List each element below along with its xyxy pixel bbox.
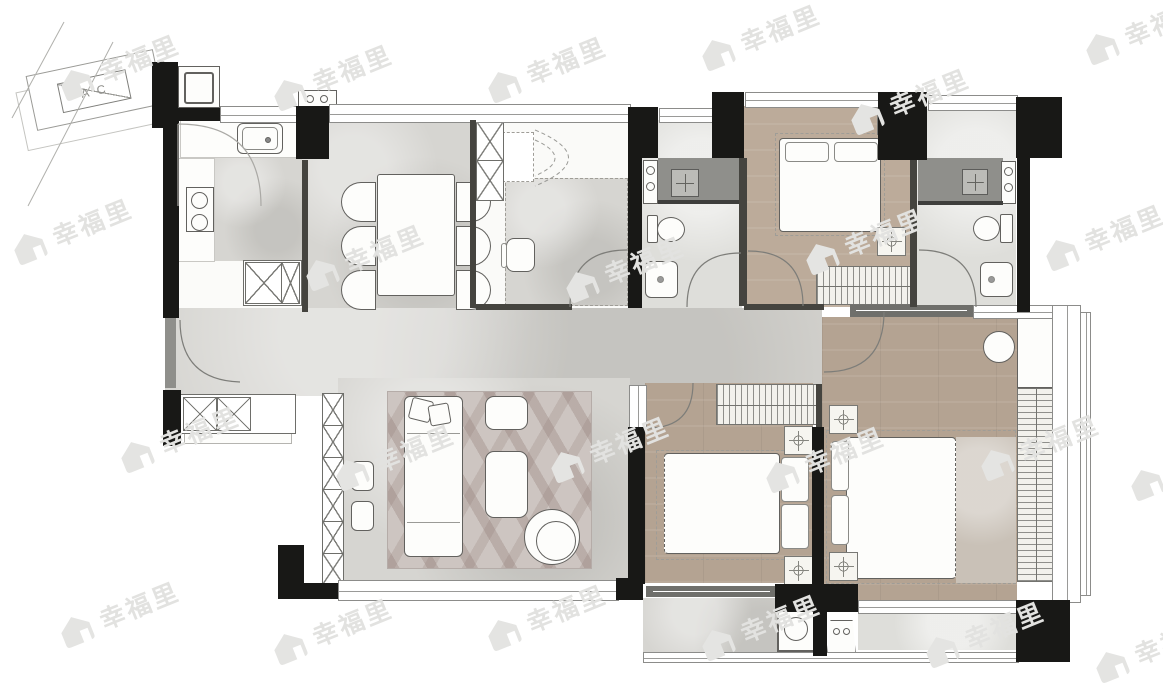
- bedroom3-bed: [664, 453, 780, 554]
- watermark-house-icon: [7, 226, 52, 269]
- kitchen-window: [220, 106, 302, 123]
- bathroom2-shower-area: [918, 158, 1003, 203]
- wall-l-corner-b: [278, 583, 338, 599]
- wall-bedroom2-left: [739, 158, 747, 306]
- wall-column-entry: [163, 390, 181, 446]
- wall-study-bottom: [476, 304, 572, 310]
- stove-burner-1: [191, 192, 208, 209]
- entry-door-leaf: [165, 318, 176, 388]
- gas-meter-dial-1: [306, 95, 314, 103]
- wall-fridge-nook: [178, 108, 220, 121]
- bedroom2-window: [745, 92, 882, 108]
- master-wardrobe-top: [1017, 310, 1053, 388]
- coffee-table: [485, 451, 528, 518]
- bathroom1-washer-dial: [646, 166, 655, 175]
- wall-column-bedroom2-l: [712, 92, 744, 158]
- watermark: 幸福里: [694, 0, 826, 77]
- study-wardrobe-x2: [476, 160, 504, 201]
- bathroom2-shower-drain: [962, 169, 988, 195]
- shoe-cabinet-x2: [217, 397, 251, 431]
- master-bed: [846, 437, 956, 579]
- watermark-house-icon: [1079, 26, 1124, 69]
- watermark-house-icon: [481, 64, 526, 107]
- wall-column-bath1: [628, 107, 658, 158]
- wall-left-kitchen: [163, 112, 179, 318]
- bathroom1-glass-partition: [658, 200, 742, 204]
- watermark: 幸福里: [266, 589, 398, 670]
- tv-strip-x1: [322, 393, 344, 427]
- wall-column-bedroom2-r: [878, 92, 927, 160]
- rear-balcony-floor: [858, 612, 1017, 650]
- sofa-cushion: [427, 402, 451, 426]
- bedroom3-balcony-slider: [646, 586, 776, 597]
- tv-strip-x4: [322, 489, 344, 523]
- toilet-tank-2: [1000, 214, 1013, 243]
- wall-balcony-block: [775, 584, 858, 612]
- bedroom3-door-jamb: [629, 385, 647, 429]
- sofa-seam: [407, 433, 460, 434]
- desk-chair-back: [501, 243, 507, 268]
- dining-chair: [341, 226, 376, 266]
- bathroom2-window: [928, 95, 1018, 111]
- kitchen-floor-marble: [215, 157, 303, 261]
- wall-column-br: [1016, 600, 1070, 662]
- refrigerator-icon: [184, 72, 214, 104]
- watermark-text: 幸福里: [1119, 0, 1163, 54]
- bathroom1-faucet-icon: [657, 276, 664, 283]
- shoe-cabinet-x1: [183, 397, 217, 431]
- watermark-text: 幸福里: [521, 27, 612, 92]
- wall-study-left: [470, 120, 476, 308]
- living-room-balcony-window: [338, 580, 619, 601]
- toilet-bowl-2: [973, 216, 1000, 241]
- watermark-text: 幸福里: [94, 572, 185, 637]
- watermark-text: 幸福里: [735, 0, 826, 60]
- mop-sink: [827, 620, 856, 655]
- ac-unit-box: AC: [57, 69, 132, 113]
- shoe-bench: [184, 433, 292, 444]
- study-wardrobe-x1: [476, 121, 504, 162]
- dining-chair: [341, 270, 376, 310]
- bathroom1-washer-dial2: [646, 182, 655, 191]
- mop-sink-faucet: [833, 628, 840, 635]
- bedroom2-wardrobe: [816, 266, 915, 305]
- bed-pillow: [831, 441, 849, 491]
- tv-strip-x5: [322, 521, 344, 555]
- bed-pillow: [831, 495, 849, 545]
- wall-bedroom3-master: [812, 427, 824, 585]
- watermark-house-icon: [695, 32, 740, 75]
- master-wardrobe: [1017, 388, 1055, 582]
- watermark-text: 幸福里: [1129, 607, 1163, 672]
- dining-study-window: [329, 104, 631, 123]
- side-table: [351, 501, 374, 531]
- watermark: 幸福里: [1038, 195, 1163, 276]
- bed-pillow: [834, 142, 878, 162]
- watermark-house-icon: [1039, 232, 1084, 275]
- wall-column-kitchen-tr: [296, 106, 329, 159]
- bathroom1-shower-drain: [671, 169, 699, 197]
- tv-strip-x2: [322, 425, 344, 459]
- master-bay-window: [1052, 305, 1081, 603]
- bed-pillow: [781, 504, 809, 549]
- dining-table: [377, 174, 455, 296]
- mop-sink-drain: [843, 628, 850, 635]
- bathroom2-glass-partition: [918, 201, 1003, 205]
- watermark: 幸福里: [1078, 0, 1163, 71]
- toilet-bowl-1: [657, 217, 685, 242]
- watermark-house-icon: [114, 434, 159, 477]
- wall-l-corner-a: [278, 545, 304, 585]
- watermark-house-icon: [54, 609, 99, 652]
- master-bed-bench: [956, 437, 1016, 583]
- ac-vent-symbol: [829, 552, 858, 581]
- fold-down-bed: [502, 132, 534, 182]
- wall-column-tr: [1016, 97, 1062, 158]
- ac-vent-symbol: [829, 405, 858, 434]
- lounge-chair-seat: [536, 521, 576, 561]
- ac-label: AC: [80, 80, 115, 100]
- bedroom3-wardrobe: [716, 384, 818, 425]
- stove-burner-2: [191, 214, 208, 231]
- tv-strip-x3: [322, 457, 344, 491]
- sofa-seam: [407, 522, 460, 523]
- ac-vent-symbol: [784, 426, 813, 455]
- master-round-table: [983, 331, 1015, 363]
- bathroom2-heater-dial: [1004, 167, 1013, 176]
- bathroom2-heater-dial2: [1004, 183, 1013, 192]
- watermark: 幸福里: [480, 27, 612, 108]
- wall-bath2-left: [910, 160, 917, 307]
- bathroom2-faucet-icon: [988, 276, 995, 283]
- wall-kitchen-half: [302, 160, 308, 312]
- kitchen-faucet-icon: [265, 137, 271, 143]
- watermark: 幸福里: [6, 189, 138, 270]
- wall-bath1-left: [628, 158, 642, 308]
- kitchen-cabinet-x2: [281, 262, 300, 304]
- washing-machine-drum: [784, 617, 808, 641]
- wall-right-bath2: [1017, 158, 1030, 312]
- watermark-house-icon: [1124, 462, 1163, 505]
- wall-master-wardrobe: [816, 384, 822, 427]
- dining-chair: [341, 182, 376, 222]
- ottoman: [485, 396, 528, 430]
- watermark-house-icon: [481, 612, 526, 655]
- bathroom1-window: [659, 108, 715, 123]
- watermark: 幸福里: [53, 572, 185, 653]
- kitchen-cabinet-x1: [245, 262, 283, 304]
- bed-pillow: [781, 457, 809, 502]
- ac-vent-symbol: [877, 227, 906, 256]
- ac-vent-symbol: [784, 556, 813, 585]
- kitchen-sink-basin: [242, 127, 278, 150]
- wall-bedroom3-left: [628, 427, 645, 584]
- wall-balcony-stub: [813, 612, 827, 656]
- floor-plan-canvas: AC 幸福里幸福里幸福里幸福里幸福里幸福里幸福里幸福里幸福里幸福里幸福里幸福里幸…: [0, 0, 1163, 686]
- balcony-railing: [643, 652, 1019, 663]
- side-table: [351, 461, 374, 491]
- watermark: 幸福里: [1123, 425, 1163, 506]
- master-top-sill: [973, 305, 1054, 319]
- wall-bedroom2-bottom: [744, 304, 824, 310]
- watermark-text: 幸福里: [47, 189, 138, 254]
- master-balcony-window: [858, 600, 1018, 614]
- watermark-house-icon: [1089, 644, 1134, 686]
- watermark-house-icon: [267, 626, 312, 669]
- bathroom2-sink: [980, 262, 1013, 297]
- gas-meter-dial-2: [320, 95, 328, 103]
- bed-pillow: [785, 142, 829, 162]
- master-bay-window-outer: [1080, 312, 1091, 596]
- watermark: 幸福里: [1088, 607, 1163, 686]
- desk-chair: [506, 238, 535, 272]
- watermark-text: 幸福里: [1079, 195, 1163, 260]
